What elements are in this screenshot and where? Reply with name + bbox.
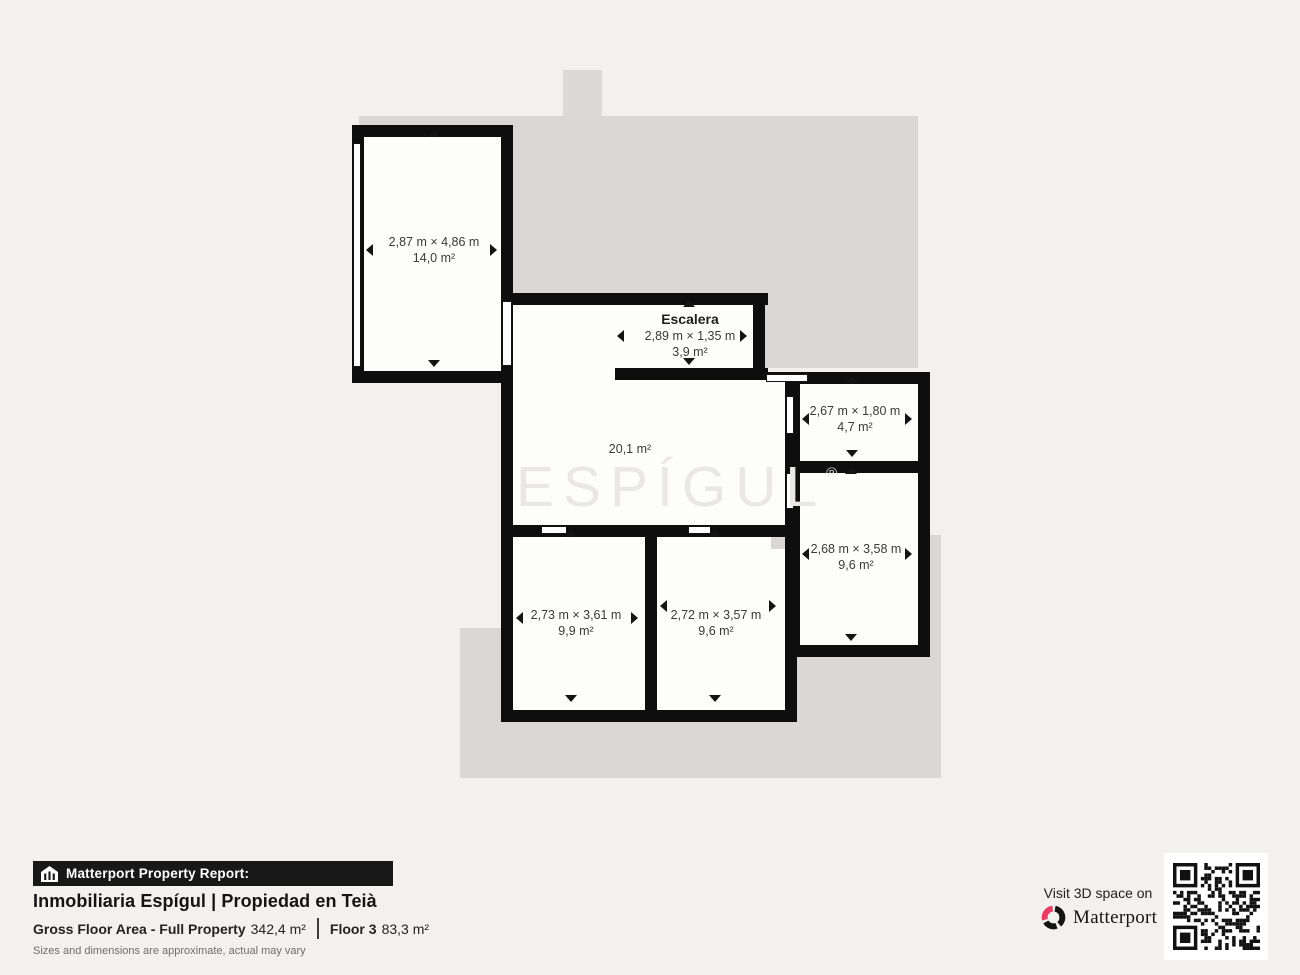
room-label-bedroom-bottom-left: 2,73 m × 3,61 m 9,9 m² xyxy=(496,607,656,639)
dimension-arrow-down xyxy=(845,634,857,641)
dimension-arrow-up xyxy=(428,130,440,137)
window xyxy=(688,526,711,534)
room-dimensions: 2,87 m × 4,86 m xyxy=(389,234,480,250)
dimension-arrow-up xyxy=(846,376,858,383)
report-header-bar: Matterport Property Report: xyxy=(33,861,393,886)
door-opening xyxy=(502,301,512,366)
dimension-arrow-down xyxy=(846,450,858,457)
dimension-arrow-down xyxy=(565,695,577,702)
door-opening xyxy=(766,374,808,382)
floor-label: Floor 3 xyxy=(330,921,377,937)
wall-top-long xyxy=(501,293,768,305)
room-dimensions: 2,73 m × 3,61 m xyxy=(531,607,622,623)
room-area: 3,9 m² xyxy=(672,344,707,360)
floor-area-value: 83,3 m² xyxy=(382,921,429,937)
room-dimensions: 2,72 m × 3,57 m xyxy=(671,607,762,623)
qr-code-svg xyxy=(1173,863,1260,950)
room-dimensions: 2,68 m × 3,58 m xyxy=(811,541,902,557)
room-area: 9,6 m² xyxy=(838,557,873,573)
room-label-living: 20,1 m² xyxy=(570,441,690,457)
dimension-arrow-up xyxy=(565,530,577,537)
dimension-arrow-up xyxy=(709,530,721,537)
room-living-floor-upper xyxy=(513,305,615,380)
qr-code xyxy=(1164,853,1268,960)
room-area: 9,6 m² xyxy=(698,623,733,639)
dimension-arrow-down xyxy=(709,695,721,702)
room-label-bedroom-bottom-mid: 2,72 m × 3,57 m 9,6 m² xyxy=(636,607,796,639)
footprint-chimney xyxy=(563,70,602,117)
gross-floor-area-label: Gross Floor Area - Full Property xyxy=(33,921,246,937)
room-name: Escalera xyxy=(661,310,719,328)
dimension-arrow-up xyxy=(683,300,695,307)
house-icon xyxy=(41,866,58,882)
property-title: Inmobiliaria Espígul | Propiedad en Teià xyxy=(33,891,377,912)
room-area: 9,9 m² xyxy=(558,623,593,639)
wall-bottom xyxy=(501,710,797,722)
report-label: Matterport Property Report: xyxy=(66,866,249,881)
divider xyxy=(317,918,319,939)
window xyxy=(541,526,567,534)
espigul-watermark: ESPÍGUL® xyxy=(516,454,786,520)
wall-escalera-bottom xyxy=(615,368,768,380)
room-label-bath: 2,67 m × 1,80 m 4,7 m² xyxy=(775,403,935,435)
disclaimer-text: Sizes and dimensions are approximate, ac… xyxy=(33,945,306,957)
room-label-bedroom-right: 2,68 m × 3,58 m 9,6 m² xyxy=(776,541,936,573)
room-area: 20,1 m² xyxy=(609,441,651,457)
area-stats: Gross Floor Area - Full Property 342,4 m… xyxy=(33,918,429,939)
room-dimensions: 2,89 m × 1,35 m xyxy=(645,328,736,344)
dimension-arrow-down xyxy=(428,360,440,367)
room-label-bedroom-top-left: 2,87 m × 4,86 m 14,0 m² xyxy=(354,234,514,266)
matterport-wordmark: Matterport xyxy=(1073,907,1157,929)
room-label-escalera: Escalera 2,89 m × 1,35 m 3,9 m² xyxy=(610,310,770,360)
dimension-arrow-up xyxy=(845,467,857,474)
matterport-logo-icon xyxy=(1040,904,1067,931)
room-dimensions: 2,67 m × 1,80 m xyxy=(810,403,901,419)
gross-floor-area-value: 342,4 m² xyxy=(251,921,306,937)
visit-3d-label: Visit 3D space on xyxy=(1040,885,1156,901)
matterport-brand: Matterport xyxy=(1040,904,1157,931)
floor-plan-canvas: ESPÍGUL® 2,87 m × 4,86 m 14,0 m² Escaler… xyxy=(0,0,1300,975)
room-area: 14,0 m² xyxy=(413,250,455,266)
room-area: 4,7 m² xyxy=(837,419,872,435)
